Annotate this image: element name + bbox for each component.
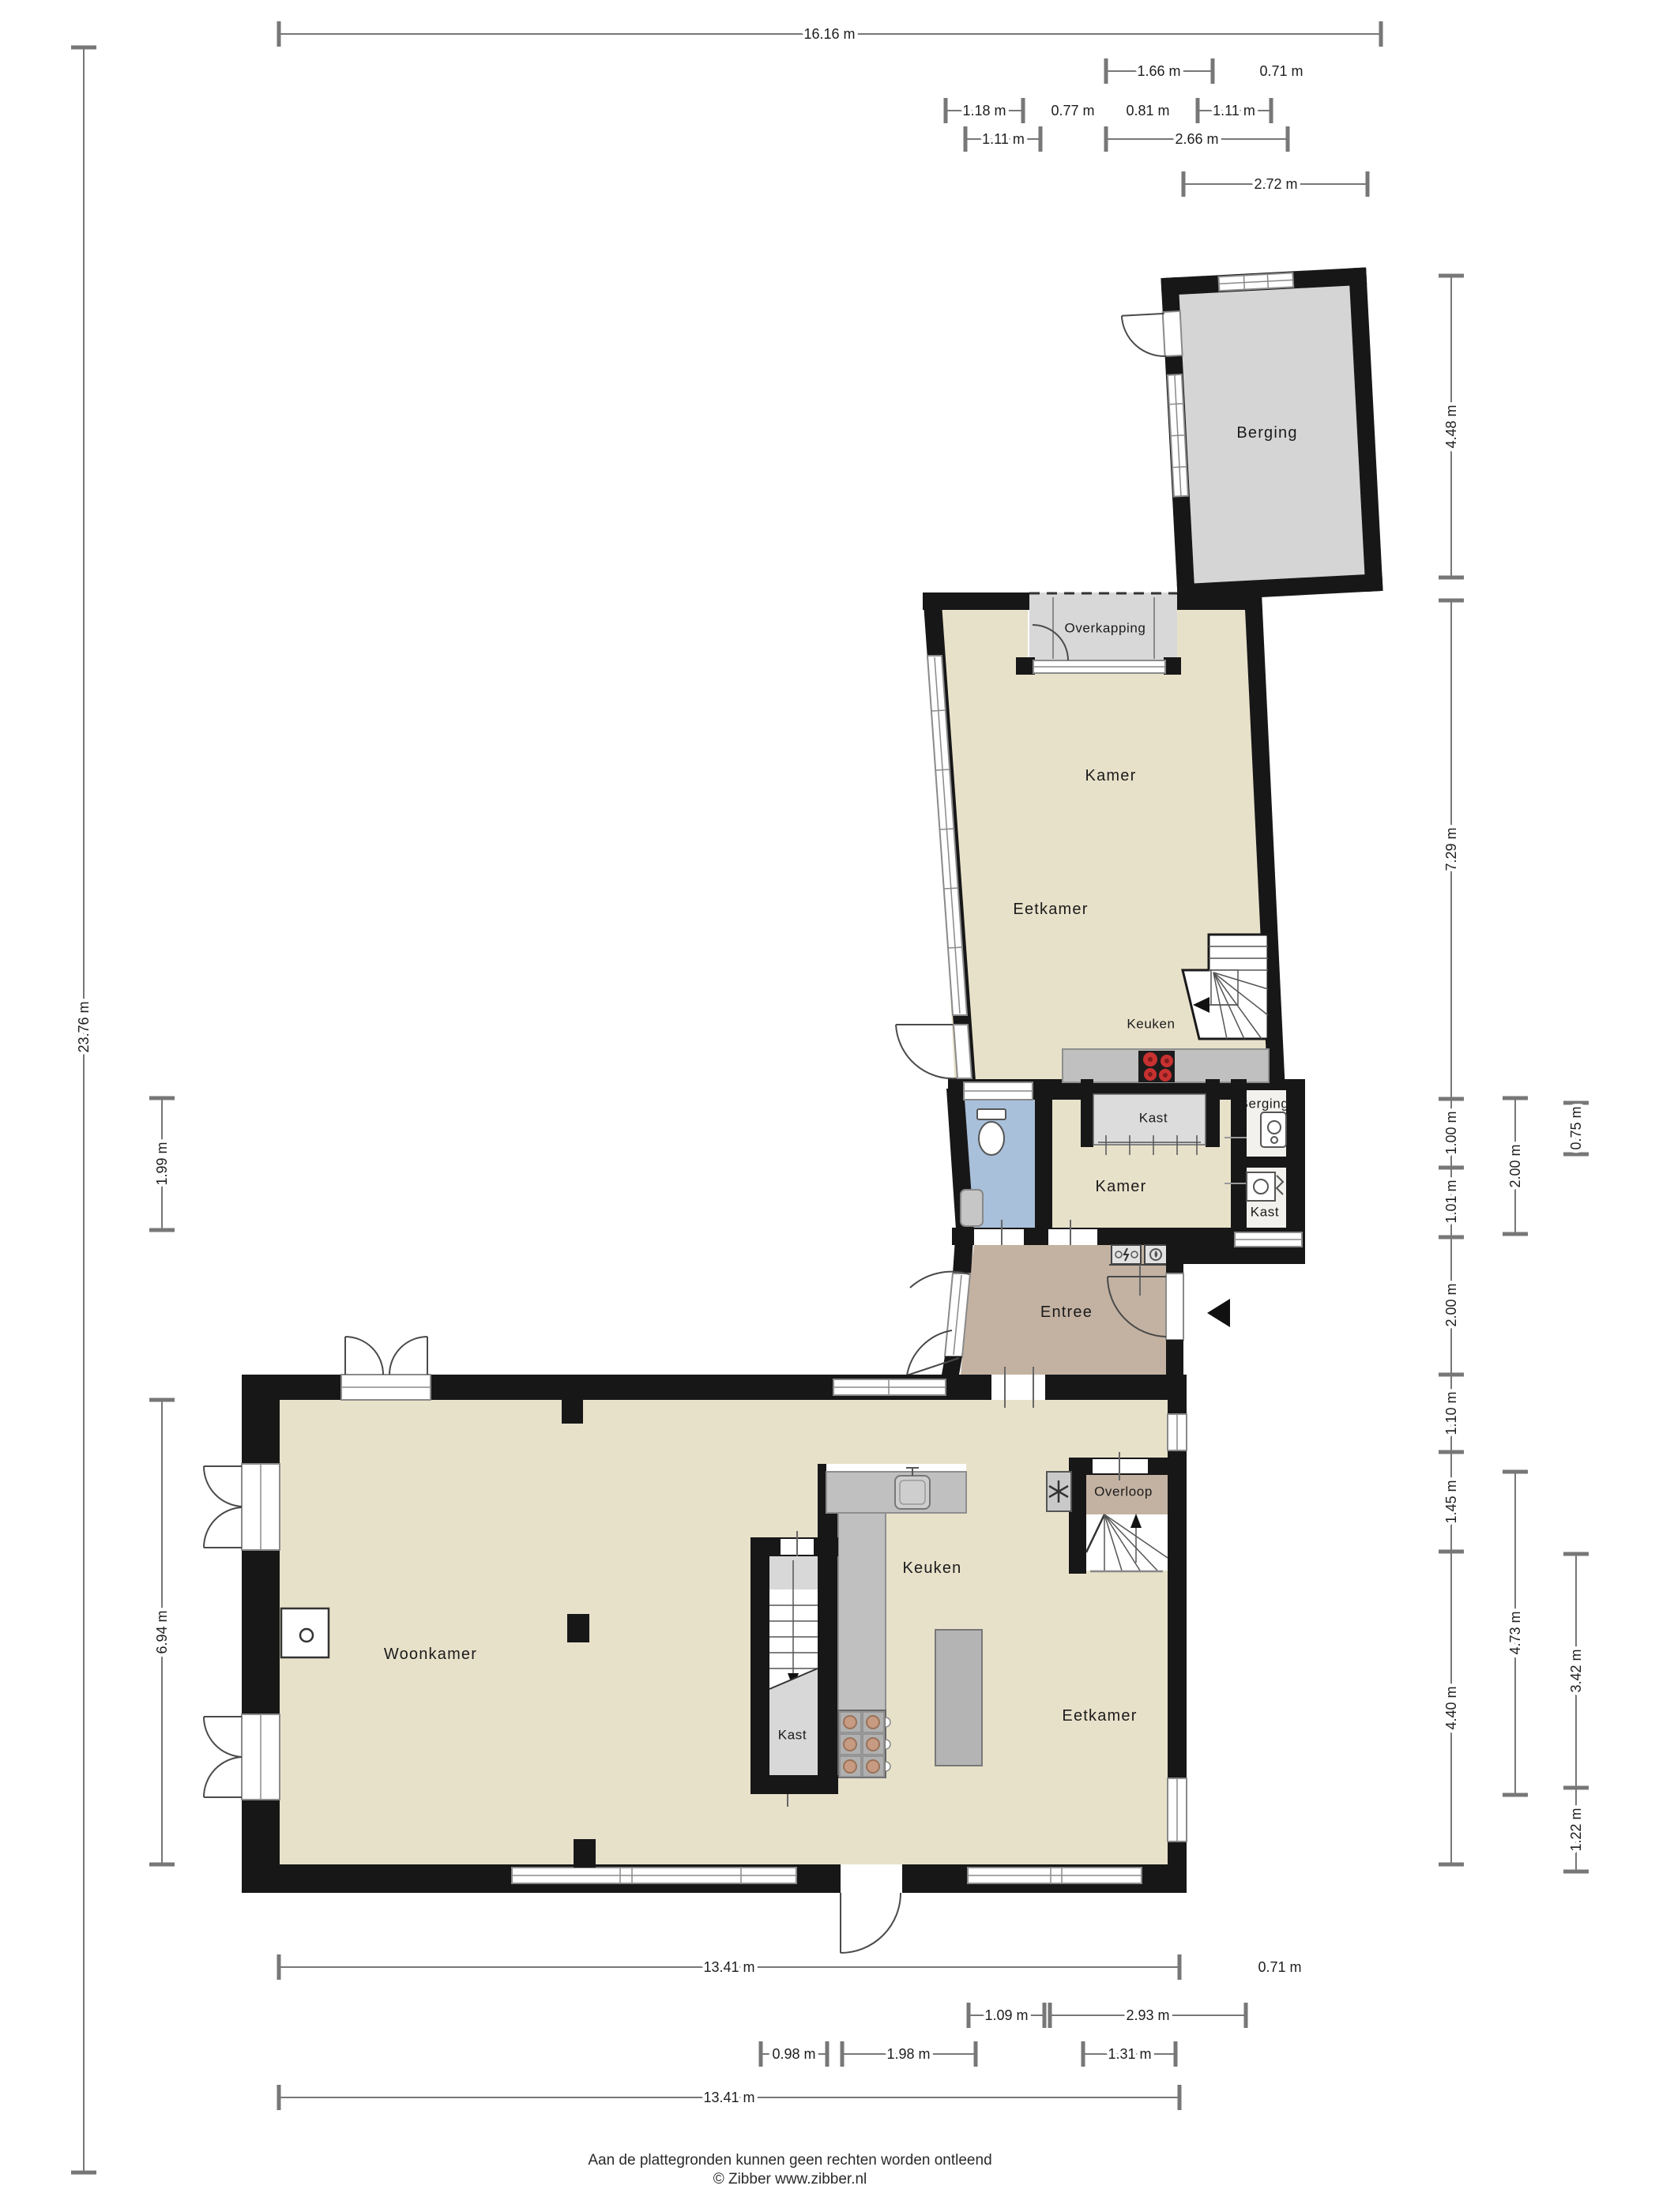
door-arc [204, 1717, 242, 1757]
floorplan-drawing: Overkapping Kamer Eetkamer Keuken [0, 0, 1659, 2212]
room-label-overkapping: Overkapping [1065, 621, 1146, 636]
window-mullion [1267, 275, 1268, 288]
stove-icon [838, 1710, 890, 1777]
window-mullion [1170, 404, 1183, 404]
wall [750, 1537, 769, 1794]
dim-label: 13.41 m [703, 2090, 754, 2105]
footer: Aan de plattegronden kunnen geen rechten… [588, 2152, 991, 2188]
window-mullion [939, 829, 954, 829]
door-arc [896, 1025, 957, 1078]
window-mullion [944, 888, 958, 889]
toilet-icon [977, 1109, 1006, 1155]
dim-label: 2.66 m [1175, 131, 1218, 147]
boiler-icon [1261, 1112, 1286, 1147]
window-mullion [935, 769, 950, 770]
room-label-keuken-lower: Keuken [902, 1559, 961, 1577]
wall [1247, 1157, 1286, 1168]
door-arc [389, 1337, 427, 1375]
dim-label: 0.75 m [1568, 1106, 1584, 1149]
wall [242, 1375, 280, 1893]
window-mullion [1172, 435, 1184, 436]
dim-label: 1.66 m [1137, 63, 1180, 79]
sink-tray-icon [961, 1190, 983, 1226]
dim-label: 1.45 m [1443, 1480, 1459, 1523]
room-label-berging-utility: Berging [1240, 1097, 1289, 1112]
dim-label: 1.22 m [1568, 1808, 1584, 1851]
dim-label: 1.31 m [1108, 2046, 1151, 2062]
room-lower-floor [280, 1400, 1168, 1864]
window-mullion [1243, 276, 1244, 289]
dim-label: 0.81 m [1126, 103, 1169, 118]
dim-label: 2.00 m [1507, 1144, 1523, 1187]
door-arc [345, 1337, 383, 1375]
door-arc [204, 1507, 242, 1548]
dim-label: 1.11 m [1213, 103, 1255, 118]
dim-label: 16.16 m [803, 26, 855, 42]
door-opening [1048, 1229, 1097, 1245]
footer-copyright: © Zibber www.zibber.nl [713, 2171, 867, 2188]
room-label-keuken-upper: Keuken [1127, 1017, 1175, 1032]
dim-label: 0.98 m [772, 2046, 815, 2062]
dim-label: 2.93 m [1126, 2007, 1169, 2023]
lower-building: Kast Overloop [204, 1337, 1187, 1953]
wall [1206, 1079, 1220, 1147]
cooktop-icon [1138, 1051, 1175, 1082]
dim-label: 1.01 m [1443, 1179, 1459, 1223]
room-label-entree: Entree [1040, 1303, 1093, 1321]
dim-label: 0.71 m [1259, 63, 1303, 79]
room-label-eetkamer-upper: Eetkamer [1013, 901, 1088, 918]
dimensions-right: 4.48 m 7.29 m 1.00 m 1.01 m 2.00 m 1.10 … [1443, 276, 1584, 1872]
door-opening [991, 1375, 1045, 1400]
footer-disclaimer: Aan de plattegronden kunnen geen rechten… [588, 2152, 991, 2169]
room-label-kast-stairs: Kast [778, 1728, 807, 1743]
wall [1166, 1340, 1183, 1375]
dim-label: 6.94 m [154, 1610, 170, 1653]
room-label-berging-shed: Berging [1236, 424, 1297, 442]
stairwell [1086, 1514, 1168, 1571]
wall-pier [574, 1839, 596, 1868]
dim-label: 13.41 m [703, 1959, 754, 1975]
dimensions-bottom: 13.41 m 0.71 m 1.09 m 2.93 m 0.98 m 1.98… [279, 1959, 1302, 2105]
dim-label: 0.71 m [1258, 1959, 1301, 1975]
door-arc [204, 1466, 242, 1507]
entrance-arrow-icon [1207, 1299, 1230, 1327]
dim-label: 7.29 m [1443, 827, 1459, 871]
dim-label: 1.98 m [886, 2046, 930, 2062]
counter-backsplash [826, 1464, 966, 1472]
wall [1166, 1228, 1183, 1275]
dim-label: 0.77 m [1051, 103, 1094, 118]
wall [750, 1775, 838, 1794]
door-opening [841, 1864, 902, 1893]
wall-pillar [1164, 657, 1181, 675]
dim-label: 3.42 m [1568, 1649, 1584, 1692]
wall [1081, 1079, 1093, 1147]
window-mullion [948, 947, 962, 948]
wall-pier [562, 1375, 583, 1424]
dim-label: 1.09 m [984, 2007, 1028, 2023]
door-arc [1122, 314, 1167, 359]
entree: Entree [907, 1228, 1230, 1375]
dim-label: 1.00 m [1443, 1111, 1459, 1154]
dim-label: 4.73 m [1507, 1611, 1523, 1654]
door-leaf [1122, 314, 1164, 316]
dim-label: 2.00 m [1443, 1283, 1459, 1326]
room-label-kast-wardrobe: Kast [1139, 1111, 1168, 1126]
room-label-overloop: Overloop [1094, 1484, 1153, 1499]
dimensions-top: 16.16 m 1.66 m 0.71 m 1.18 m 0.77 m 0.81… [279, 26, 1381, 192]
door-arc [204, 1757, 242, 1797]
wall-pillar [1016, 657, 1035, 675]
kitchen-counter-lower [838, 1513, 886, 1710]
dim-label: 1.10 m [1443, 1391, 1459, 1435]
wall [953, 1228, 974, 1273]
window-mullion [1173, 467, 1186, 468]
room-label-kamer-upper: Kamer [1085, 767, 1137, 784]
dim-label: 4.40 m [1443, 1686, 1459, 1729]
dim-label: 1.18 m [962, 103, 1006, 118]
dim-label: 1.11 m [982, 131, 1025, 147]
room-label-woonkamer: Woonkamer [384, 1646, 477, 1663]
door-arc [841, 1893, 901, 1953]
kitchen-island [935, 1630, 982, 1766]
dim-label: 2.72 m [1254, 176, 1297, 192]
ventilation-fan-icon [1047, 1472, 1071, 1511]
fireplace-icon [281, 1608, 329, 1657]
upper-wing: Overkapping Kamer Eetkamer Keuken [896, 592, 1305, 1100]
wall [942, 1356, 962, 1375]
room-label-kamer-hall: Kamer [1096, 1178, 1147, 1195]
room-label-eetkamer-lower: Eetkamer [1062, 1707, 1137, 1725]
dim-label: 4.48 m [1443, 404, 1459, 448]
door-opening [1163, 311, 1183, 356]
floorplan-page: Overkapping Kamer Eetkamer Keuken [0, 0, 1659, 2212]
door-opening [974, 1229, 1024, 1245]
wall-pier [567, 1614, 589, 1642]
front-door-opening [1166, 1273, 1183, 1340]
dimensions-left: 23.76 m 1.99 m 6.94 m [76, 47, 170, 2172]
wall [1035, 1100, 1052, 1229]
dim-label: 1.99 m [154, 1142, 170, 1185]
door-opening [954, 1025, 972, 1078]
room-label-kast-utility: Kast [1251, 1205, 1279, 1220]
hall-row: Kast Kamer Berging Kast [946, 1079, 1305, 1264]
dim-label: 23.76 m [76, 1001, 92, 1052]
window-mullion [931, 710, 946, 711]
